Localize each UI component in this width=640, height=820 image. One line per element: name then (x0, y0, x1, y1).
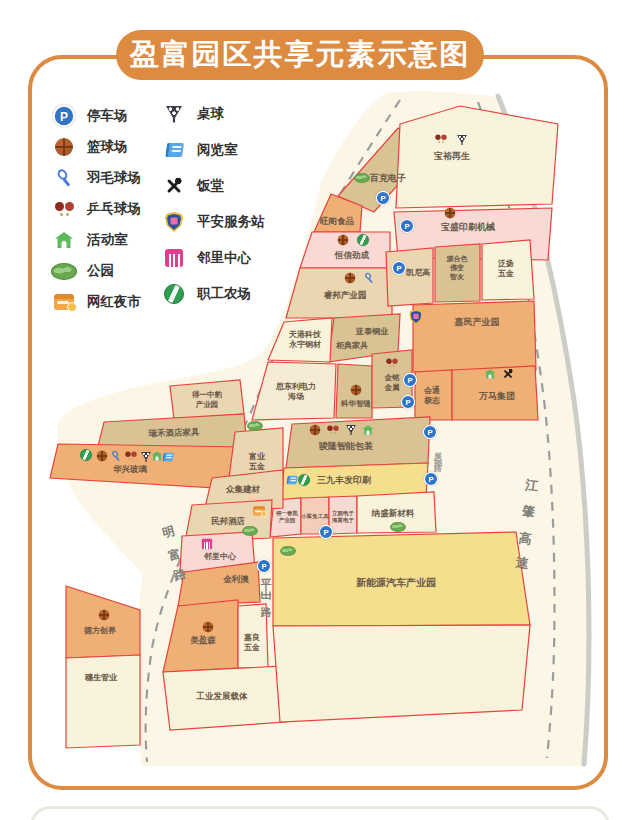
pingpong-icon (435, 135, 448, 144)
parcel-reserved (273, 625, 530, 722)
basketball-icon (345, 273, 356, 284)
legend-item-reading-room: 阅览室 (160, 139, 265, 161)
parcel-suisheng (66, 655, 140, 748)
block-label-suisheng: 穗生管业 (85, 673, 117, 683)
activity-house-icon (485, 369, 496, 379)
block-label-zhongji: 众集建材 (226, 484, 260, 495)
block-label-jinming: 金铭 金属 (385, 373, 400, 393)
line: 金属 (385, 383, 400, 393)
block-label-wangge: 旺阁食品 (320, 216, 354, 227)
block-label-ruihe: 瑞禾酒店家具 (148, 427, 199, 440)
basketball-icon (99, 610, 110, 621)
block-label-deyichunkai: 得一春凯 产业园 (276, 510, 298, 524)
legend-item-badminton: 羽毛球场 (50, 167, 141, 189)
legend-item-staff-farm: 职工农场 (160, 283, 265, 305)
line: 天港科技 (289, 330, 321, 340)
billiards-icon (160, 106, 188, 123)
block-label-guidian: 柜典家具 (336, 341, 368, 351)
line: 五金 (244, 643, 260, 653)
line: 五金 (498, 269, 514, 279)
canteen-icon (160, 177, 188, 195)
block-label-kainigao: 凯尼高 (406, 268, 430, 278)
legend-label: 职工农场 (197, 285, 251, 303)
neighborhood-center-icon (160, 249, 188, 267)
pingpong-icon (125, 452, 138, 461)
block-label-yatai: 亚泰铜业 (356, 327, 388, 337)
parking-icon (424, 472, 438, 486)
block-label-wanma: 万马集团 (479, 391, 515, 403)
billiards-icon (346, 425, 357, 435)
activity-house-icon (152, 451, 163, 461)
legend-label: 网红夜市 (87, 293, 141, 311)
parcel-baoyu (396, 106, 558, 208)
block-label-jinliao: 金利澳 (223, 574, 249, 585)
line: 五金 (249, 462, 265, 472)
reading-room-icon (287, 476, 297, 484)
legend-label: 篮球场 (87, 138, 128, 156)
block-label-huaxing: 华兴玻璃 (113, 464, 147, 475)
legend-label: 公园 (87, 262, 114, 280)
block-label-sanjiu: 三九丰发印刷 (317, 475, 371, 487)
legend-label: 饭堂 (197, 177, 224, 195)
staff-farm-icon (357, 234, 369, 246)
badminton-icon (111, 451, 122, 462)
line: 永宇钢材 (289, 340, 321, 350)
safety-station-icon (160, 212, 188, 232)
line: 立圆电子 (332, 510, 354, 517)
basketball-icon (351, 385, 362, 396)
legend-item-park: 公园 (50, 260, 141, 282)
parcel-defang (66, 586, 140, 658)
road-label-pingshan: 平山一路 (258, 570, 273, 606)
badminton-icon (364, 273, 375, 284)
block-label-gongye: 工业发展载体 (197, 691, 248, 702)
parking-icon (376, 191, 390, 205)
park-icon (280, 546, 296, 556)
park-icon (390, 522, 406, 532)
block-label-tianyuan: 天港科技 永宇钢材 (289, 330, 321, 351)
legend-item-night-market: 网红夜市 (50, 291, 141, 313)
legend-item-activity-room: 活动室 (50, 229, 141, 251)
staff-farm-icon (80, 449, 92, 461)
block-label-minbang: 民邦酒店 (211, 516, 245, 527)
line: 极志 (424, 396, 440, 406)
reading-room-icon (163, 453, 173, 461)
block-label-sidongli: 思东利电力 海场 (276, 382, 316, 403)
block-label-xiaoshayu: 小鲨鱼工具 (301, 513, 329, 520)
line: 泛扬 (498, 259, 514, 269)
parking-icon (423, 425, 437, 439)
block-label-meiyingsen: 美盈森 (190, 635, 216, 646)
staff-farm-icon (298, 474, 310, 486)
block-label-kehua: 科华智缝 (341, 399, 371, 409)
park-icon (242, 526, 258, 536)
legend-column-1: 停车场 篮球场 羽毛球场 乒乓球场 活动室 公园 网红夜市 (50, 105, 141, 322)
parcel-jiamin (413, 301, 536, 372)
block-label-deyizhongbao: 得一中豹 产业园 (192, 390, 222, 410)
safety-station-icon (409, 310, 423, 325)
line: 思东利电力 (276, 382, 316, 392)
basketball-icon (445, 208, 456, 219)
reading-room-icon (160, 143, 188, 157)
line: 产业园 (192, 400, 222, 410)
block-label-fuye: 富业 五金 (249, 452, 265, 473)
activity-house-icon (363, 425, 374, 435)
block-label-yuanhese: 源合色 佛变 智友 (447, 254, 468, 281)
page-title-pill: 盈富园区共享元素示意图 (116, 30, 484, 80)
night-market-icon (50, 294, 78, 310)
legend-item-billiards: 桌球 (160, 103, 265, 125)
block-label-baoyu: 宝裕再生 (434, 151, 470, 163)
line: 海场 (276, 392, 316, 402)
block-label-baike: 百克电子 (370, 173, 406, 185)
page-title: 盈富园区共享元素示意图 (130, 35, 471, 75)
legend-label: 停车场 (87, 107, 128, 125)
line: 得一春凯 (276, 510, 298, 517)
line: 佛变 (447, 263, 468, 272)
park-icon (354, 173, 370, 183)
night-market-icon (253, 506, 265, 516)
basketball-icon (50, 138, 78, 156)
billiards-icon (457, 135, 468, 145)
basketball-icon (310, 425, 321, 436)
parking-icon (257, 559, 271, 573)
parking-icon (403, 373, 417, 387)
basketball-icon (97, 451, 108, 462)
legend-item-pingpong: 乒乓球场 (50, 198, 141, 220)
parking-icon (392, 261, 406, 275)
block-label-linli: 邻里中心 (204, 552, 236, 562)
parking-icon (319, 525, 333, 539)
line: 得一中豹 (192, 390, 222, 400)
line: 海富电子 (332, 517, 354, 524)
line: 智友 (447, 273, 468, 282)
legend-label: 桌球 (197, 105, 224, 123)
badminton-icon (50, 169, 78, 187)
legend-item-safety-station: 平安服务站 (160, 211, 265, 233)
block-label-jiamin: 嘉民产业园 (455, 317, 500, 329)
legend-item-basketball: 篮球场 (50, 136, 141, 158)
parking-icon (400, 219, 414, 233)
legend-item-canteen: 饭堂 (160, 175, 265, 197)
legend-label: 羽毛球场 (87, 169, 141, 187)
activity-house-icon (50, 232, 78, 248)
block-label-nasheng: 纳盛新材料 (372, 508, 415, 519)
block-label-huitong: 会通 极志 (424, 386, 440, 407)
legend-label: 活动室 (87, 231, 128, 249)
pingpong-icon (50, 202, 78, 217)
road-label-zhanxiang: 展翔路 (431, 446, 442, 464)
block-label-hengxin: 恒信劲成 (335, 250, 369, 261)
legend-item-parking: 停车场 (50, 105, 141, 127)
canteen-icon (503, 369, 514, 380)
parking-icon (401, 395, 415, 409)
block-label-junlong: 骏隆智能包装 (319, 441, 373, 453)
block-label-xinnengyuan: 新能源汽车产业园 (356, 576, 436, 589)
legend-label: 邻里中心 (197, 249, 251, 267)
line: 金铭 (385, 373, 400, 383)
legend-column-2: 桌球 阅览室 饭堂 平安服务站 邻里中心 职工农场 (160, 103, 265, 314)
line: 会通 (424, 386, 440, 396)
parking-icon (50, 104, 78, 128)
park-icon (50, 263, 78, 280)
line: 产业园 (276, 517, 298, 524)
legend-label: 平安服务站 (197, 213, 265, 231)
line: 富业 (249, 452, 265, 462)
legend-item-neighborhood-center: 邻里中心 (160, 247, 265, 269)
pingpong-icon (386, 359, 399, 368)
legend-label: 乒乓球场 (87, 200, 141, 218)
block-label-fanyang: 泛扬 五金 (498, 259, 514, 280)
block-label-liyuan: 立圆电子 海富电子 (332, 510, 354, 524)
park-icon (247, 421, 263, 431)
block-label-jialiang: 嘉良 五金 (244, 633, 260, 654)
block-label-baosheng: 宝盛印刷机械 (441, 222, 495, 234)
staff-farm-icon (160, 284, 188, 304)
billiards-icon (141, 452, 152, 462)
block-label-defang: 德方创界 (84, 626, 116, 636)
line: 源合色 (447, 254, 468, 263)
neighborhood-center-icon (202, 539, 213, 550)
page: { "title": "盈富园区共享元素示意图", "colors": { "a… (0, 0, 640, 820)
pingpong-icon (327, 426, 340, 435)
line: 嘉良 (244, 633, 260, 643)
basketball-icon (338, 235, 349, 246)
basketball-icon (203, 622, 214, 633)
legend-label: 阅览室 (197, 141, 238, 159)
block-label-ruibang: 睿邦产业园 (324, 290, 367, 301)
